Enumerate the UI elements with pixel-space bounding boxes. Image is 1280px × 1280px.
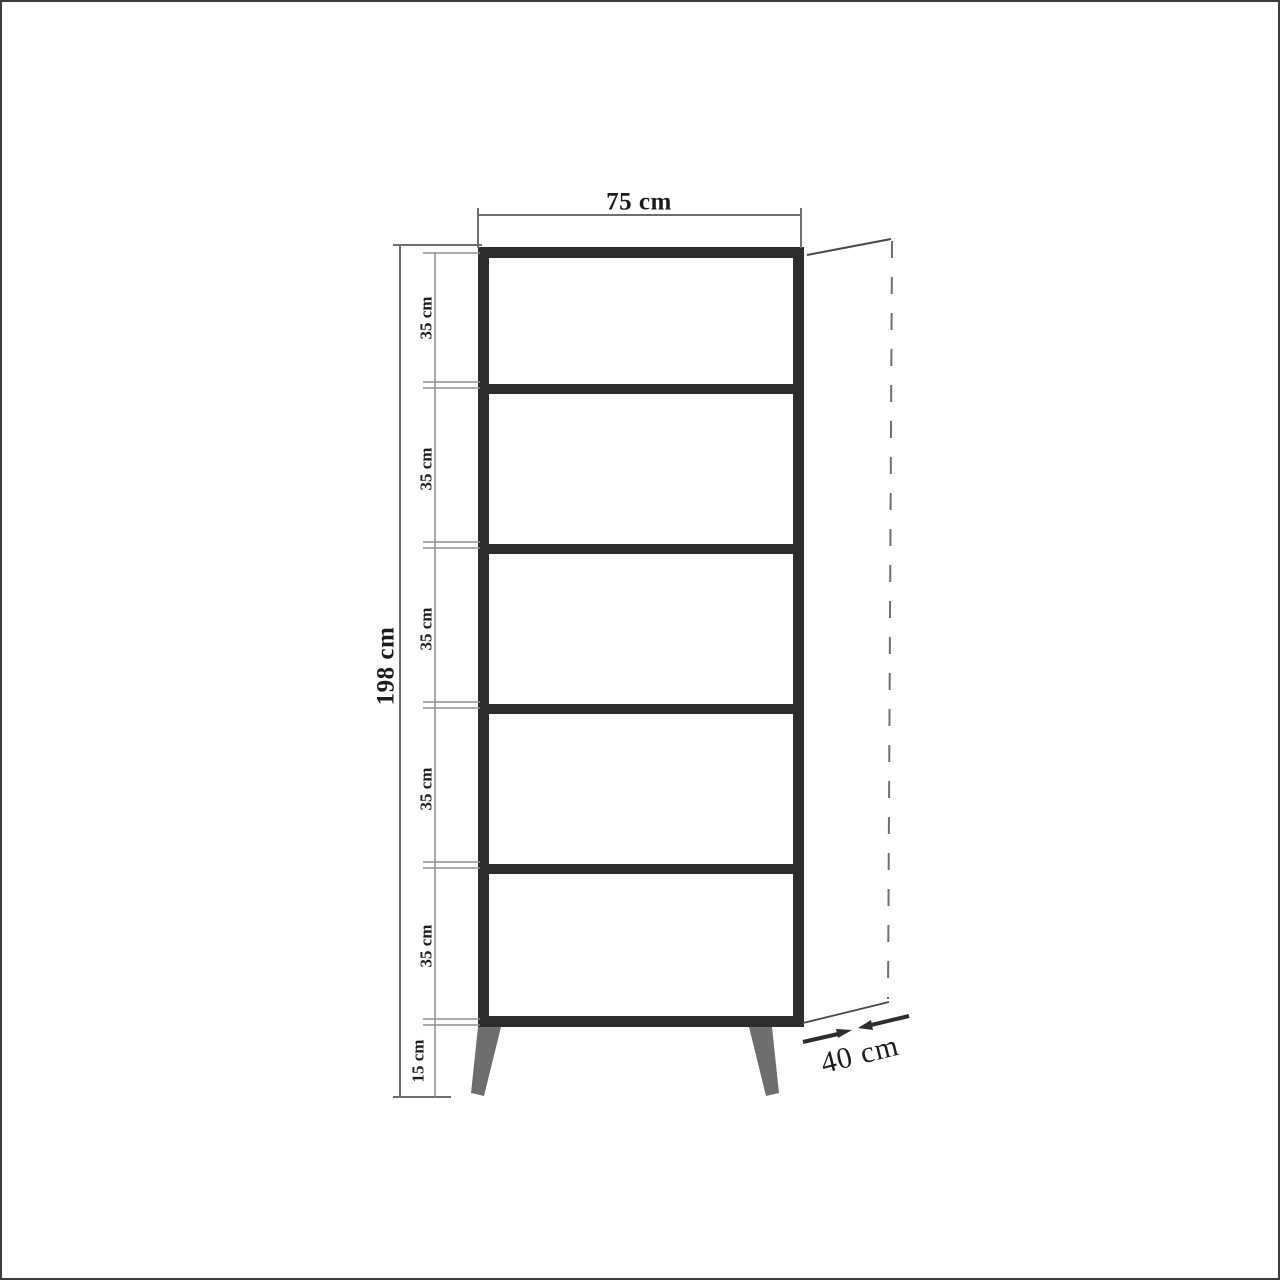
shelf-dimension-label-4: 35 cm [418,768,435,811]
shelf-dimension-label-1: 35 cm [418,297,435,340]
shelf-dimension-label-2: 35 cm [418,448,435,491]
diagram-canvas: 75 cm 198 cm 35 cm 35 cm 35 cm 35 cm 35 … [0,0,1280,1280]
depth-arrow-right-head [858,1020,873,1030]
depth-arrow-right-shaft [871,1016,909,1025]
depth-projection-bottom-edge [803,1002,889,1023]
right-leg [749,1027,779,1096]
depth-arrow-left-shaft [803,1034,838,1042]
shelf-dimension-label-3: 35 cm [418,608,435,651]
width-dimension-label: 75 cm [606,190,672,215]
depth-arrow-left-head [836,1029,852,1038]
cabinet-body-outline [484,253,799,1022]
leg-height-label: 15 cm [410,1040,427,1083]
height-dimension-label: 198 cm [374,627,399,706]
left-leg [471,1027,501,1096]
depth-projection-top-edge [807,239,891,255]
depth-projection-dashed-edge [888,241,892,999]
shelf-dimension-label-5: 35 cm [418,925,435,968]
